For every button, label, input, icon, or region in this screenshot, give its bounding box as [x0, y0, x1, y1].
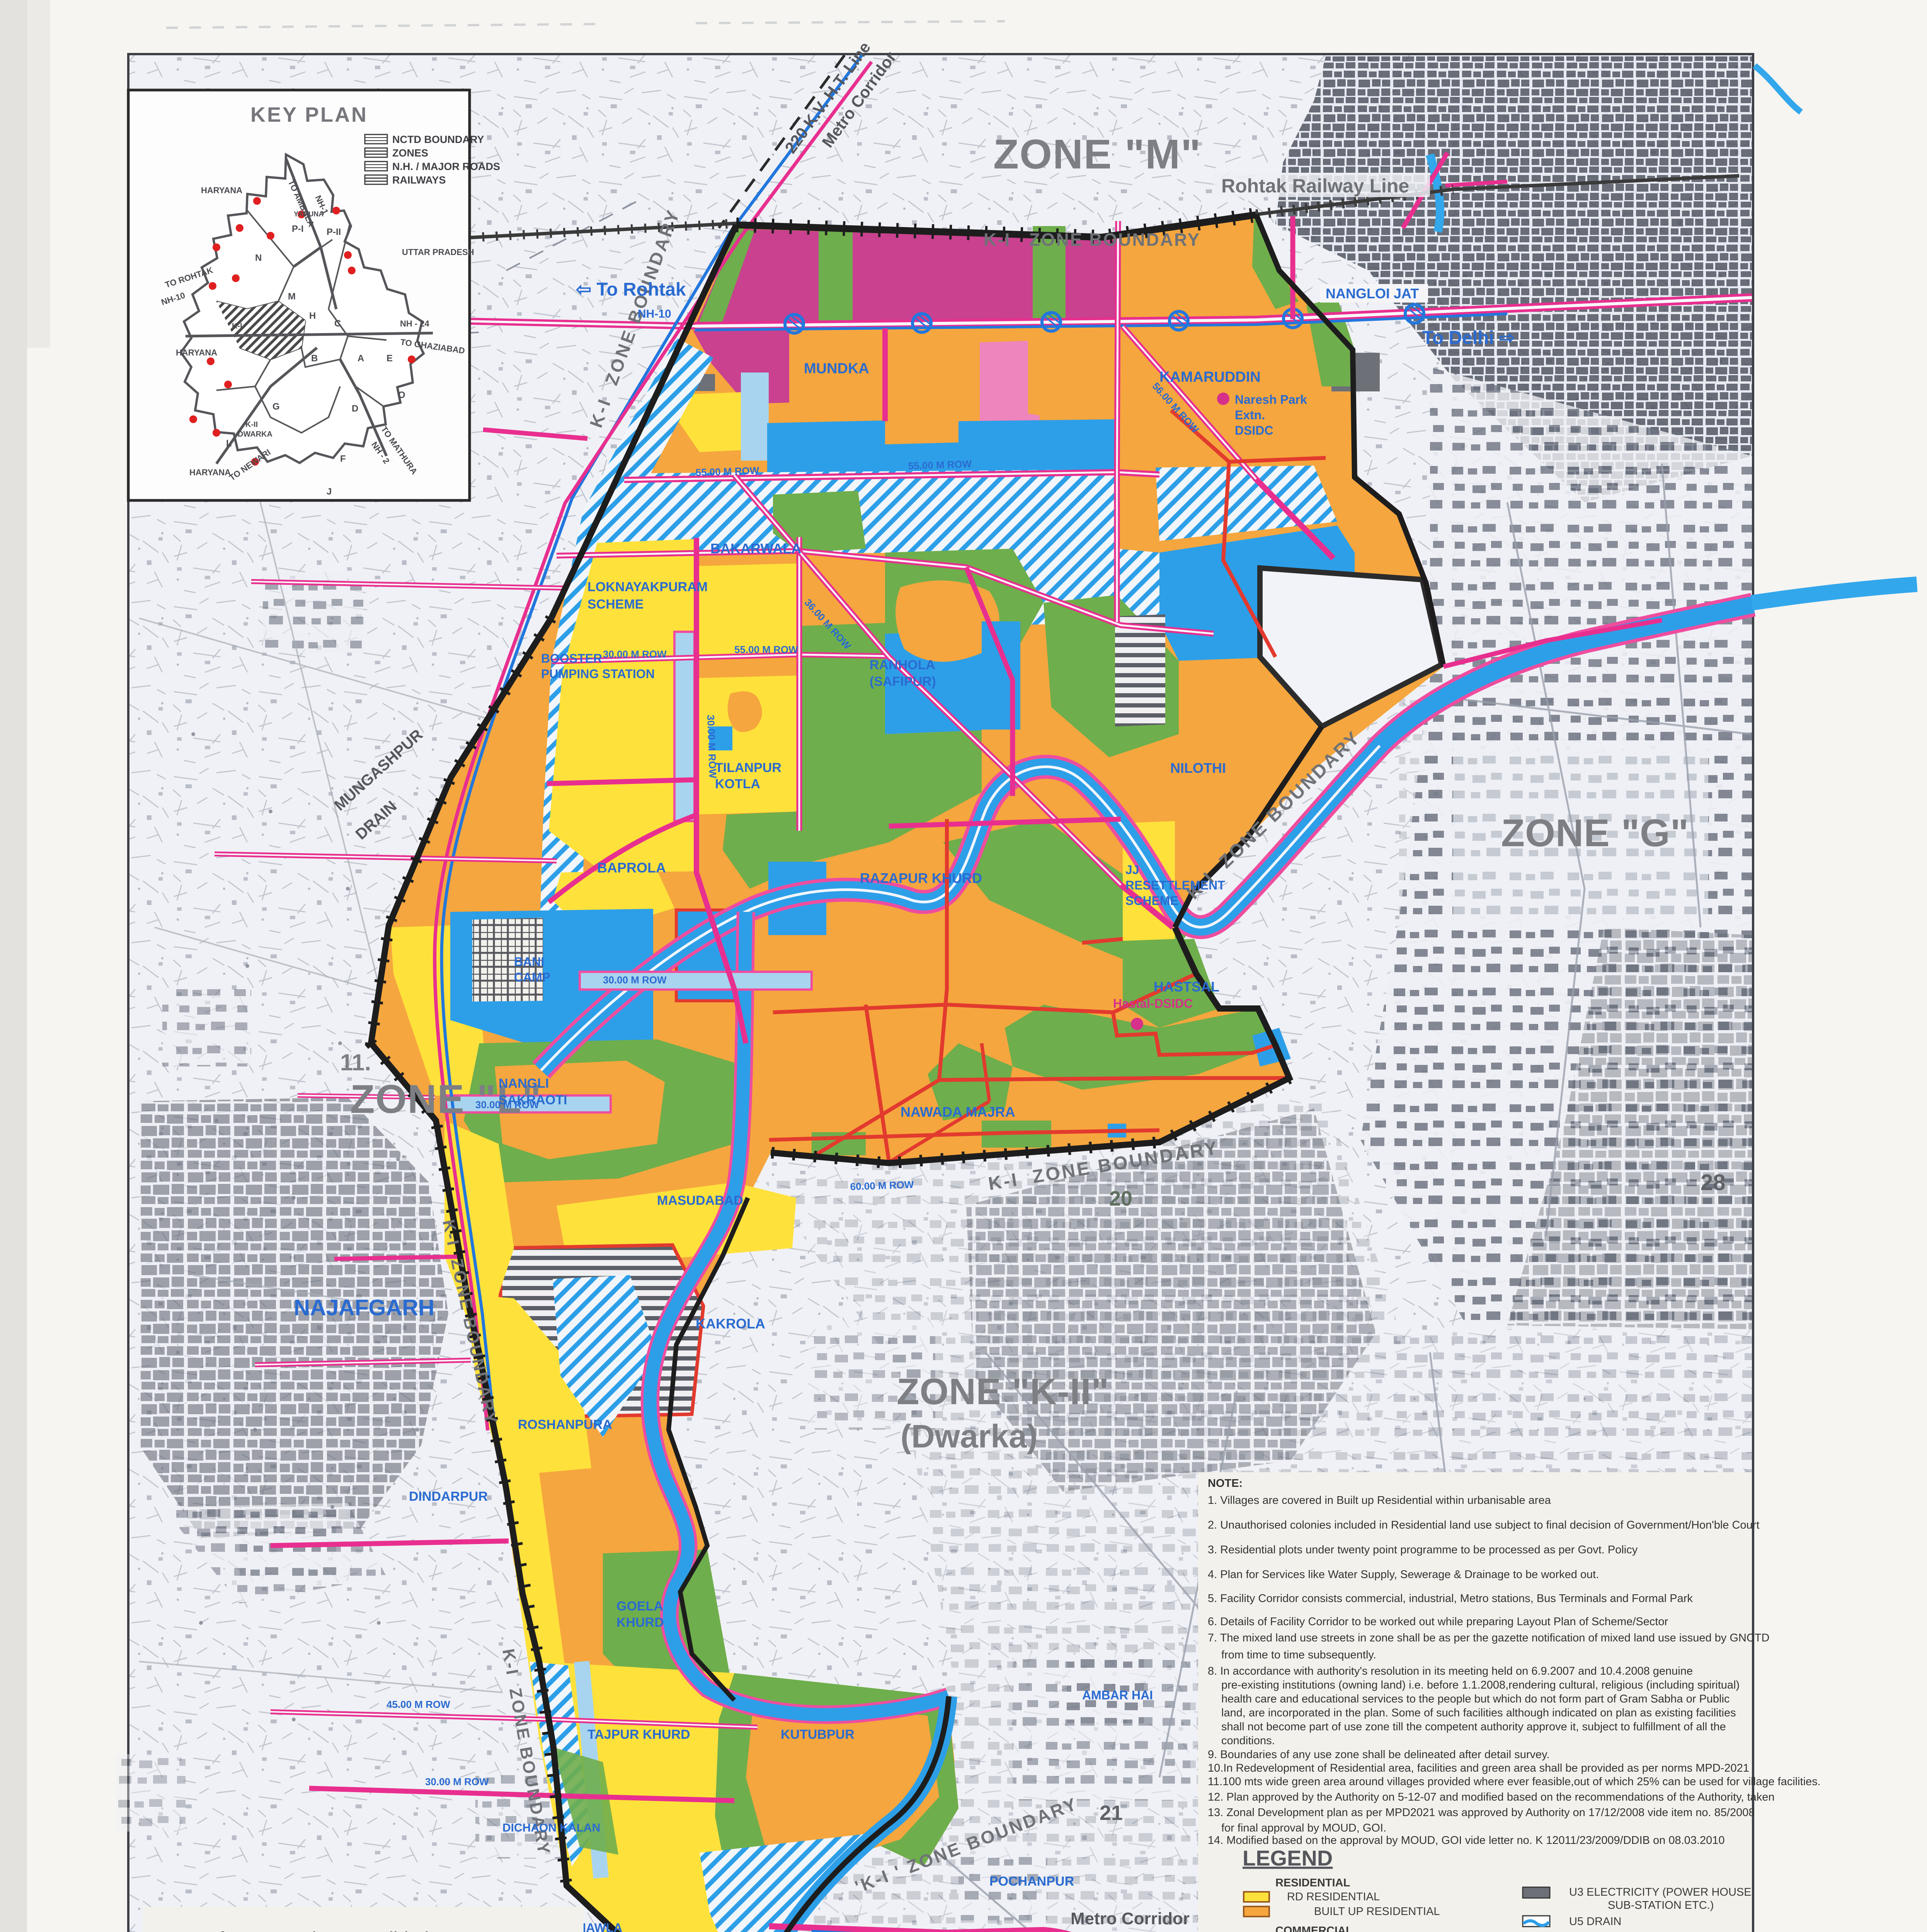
svg-text:Metro Corridor: Metro Corridor: [1071, 1909, 1190, 1928]
svg-text:30.00 M ROW: 30.00 M ROW: [705, 714, 719, 779]
svg-text:UTTAR PRADESH: UTTAR PRADESH: [402, 247, 474, 257]
svg-text:12. Plan approved by the Autho: 12. Plan approved by the Authority on 5-…: [1208, 1791, 1775, 1803]
svg-text:B: B: [311, 353, 318, 364]
svg-text:20: 20: [1109, 1187, 1132, 1210]
svg-text:JJ: JJ: [1125, 863, 1139, 877]
svg-text:ZONE "M": ZONE "M": [993, 131, 1201, 177]
svg-text:RAZAPUR KHURD: RAZAPUR KHURD: [860, 870, 982, 886]
svg-text:LEGEND: LEGEND: [1243, 1846, 1333, 1870]
svg-text:RD RESIDENTIAL: RD RESIDENTIAL: [1287, 1891, 1380, 1903]
svg-text:ZDP of Zone K-I (West Delhi-II: ZDP of Zone K-I (West Delhi-II): [164, 1928, 432, 1932]
svg-text:MUNDKA: MUNDKA: [804, 361, 869, 377]
svg-text:NAJAFGARH: NAJAFGARH: [294, 1295, 434, 1320]
svg-text:HASTSAL: HASTSAL: [1154, 979, 1219, 995]
svg-text:TILANPUR: TILANPUR: [715, 760, 781, 775]
svg-text:5. Facility Corridor consists: 5. Facility Corridor consists commercial…: [1208, 1592, 1693, 1605]
svg-text:30.00 M ROW: 30.00 M ROW: [425, 1776, 489, 1787]
svg-text:PUMPING STATION: PUMPING STATION: [541, 667, 655, 681]
svg-text:POCHANPUR: POCHANPUR: [989, 1874, 1074, 1889]
svg-text:land, are incorporated in the: land, are incorporated in the plan. Some…: [1221, 1707, 1736, 1719]
svg-text:NANGLOI JAT: NANGLOI JAT: [1326, 286, 1419, 301]
svg-text:conditions.: conditions.: [1221, 1735, 1275, 1747]
svg-text:KHURD: KHURD: [616, 1615, 664, 1630]
svg-text:N.H. / MAJOR ROADS: N.H. / MAJOR ROADS: [392, 161, 500, 172]
svg-text:11.100 mts wide green area aro: 11.100 mts wide green area around villag…: [1208, 1776, 1821, 1788]
svg-text:TAJPUR KHURD: TAJPUR KHURD: [587, 1727, 690, 1742]
svg-text:SCHEME: SCHEME: [587, 597, 643, 612]
svg-text:G: G: [272, 401, 280, 412]
svg-text:8. In accordance with authorit: 8. In accordance with authority's resolu…: [1208, 1665, 1693, 1677]
svg-text:K-I ZONE BOUNDARY: K-I ZONE BOUNDARY: [984, 230, 1200, 250]
svg-text:from time to time subsequentl: from time to time subsequently.: [1221, 1649, 1376, 1661]
svg-text:MASUDABAD: MASUDABAD: [657, 1193, 743, 1208]
svg-text:55.00 M ROW: 55.00 M ROW: [734, 644, 798, 655]
svg-text:(Dwarka): (Dwarka): [901, 1418, 1038, 1454]
svg-text:1. Villages are covered in Bui: 1. Villages are covered in Built up Resi…: [1208, 1494, 1551, 1507]
svg-text:P-II: P-II: [327, 227, 341, 237]
svg-text:SUB-STATION ETC.): SUB-STATION ETC.): [1608, 1899, 1714, 1912]
svg-text:health care and educational se: health care and educational services to …: [1221, 1693, 1730, 1705]
svg-text:SCHEME: SCHEME: [1125, 894, 1178, 908]
svg-text:⇦ To Rohtak: ⇦ To Rohtak: [576, 279, 686, 300]
svg-text:DSIDC: DSIDC: [1235, 423, 1273, 437]
svg-text:Rohtak Railway Line: Rohtak Railway Line: [1221, 175, 1409, 197]
svg-text:shall not become part of use z: shall not become part of use zone till t…: [1221, 1721, 1726, 1733]
svg-text:To Delhi ⇨: To Delhi ⇨: [1422, 328, 1515, 348]
svg-text:HARYANA: HARYANA: [176, 348, 217, 357]
svg-text:A: A: [357, 353, 364, 364]
svg-text:NAWADA MAJRA: NAWADA MAJRA: [901, 1104, 1015, 1120]
svg-text:J: J: [327, 486, 332, 497]
svg-text:RESETTLEMENT: RESETTLEMENT: [1125, 878, 1225, 892]
svg-text:E: E: [386, 353, 393, 364]
svg-text:KOTLA: KOTLA: [715, 777, 760, 791]
svg-text:U5 DRAIN: U5 DRAIN: [1569, 1915, 1621, 1928]
svg-text:DICHAON KALAN: DICHAON KALAN: [502, 1821, 600, 1834]
svg-text:4. Plan for Services like Wate: 4. Plan for Services like Water Supply, …: [1208, 1568, 1599, 1581]
svg-text:BAKARWALA: BAKARWALA: [710, 541, 801, 556]
svg-text:DINDARPUR: DINDARPUR: [409, 1489, 488, 1504]
svg-text:H: H: [309, 311, 316, 321]
svg-text:(SAFIPUR): (SAFIPUR): [870, 674, 936, 689]
svg-text:KUTUBPUR: KUTUBPUR: [781, 1727, 855, 1742]
svg-text:BANI: BANI: [514, 955, 544, 969]
svg-text:RAILWAYS: RAILWAYS: [392, 174, 446, 186]
svg-text:60.00 M ROW: 60.00 M ROW: [850, 1179, 914, 1192]
svg-text:13. Zonal Development plan as: 13. Zonal Development plan as per MPD202…: [1208, 1806, 1755, 1819]
svg-text:30.00 M ROW: 30.00 M ROW: [603, 974, 667, 986]
svg-text:RANHOLA: RANHOLA: [870, 658, 935, 672]
svg-text:KAKROLA: KAKROLA: [696, 1316, 765, 1332]
svg-text:for final approval by MOUD, G: for final approval by MOUD, GOI.: [1221, 1822, 1386, 1834]
svg-text:DWARKA: DWARKA: [238, 430, 272, 439]
svg-text:C: C: [334, 318, 341, 329]
svg-text:NH-10: NH-10: [638, 308, 671, 320]
svg-text:11.: 11.: [340, 1049, 371, 1075]
svg-text:2. Unauthorised colonies inclu: 2. Unauthorised colonies included in Res…: [1208, 1519, 1759, 1531]
svg-text:KEY PLAN: KEY PLAN: [250, 103, 368, 126]
svg-text:BOOSTER: BOOSTER: [541, 651, 602, 665]
svg-text:N: N: [255, 253, 262, 263]
svg-text:ZONE "G": ZONE "G": [1501, 811, 1689, 855]
svg-text:21: 21: [1100, 1801, 1123, 1825]
svg-text:Hastal-DSIDC: Hastal-DSIDC: [1113, 997, 1193, 1010]
svg-text:BAPROLA: BAPROLA: [597, 860, 666, 876]
svg-text:COMMERCIAL: COMMERCIAL: [1275, 1925, 1353, 1932]
svg-text:CAMP: CAMP: [514, 970, 550, 984]
svg-text:9. Boundaries of any use zone: 9. Boundaries of any use zone shall be d…: [1208, 1748, 1550, 1761]
svg-text:YAMUNA: YAMUNA: [294, 210, 323, 218]
svg-text:KAMARUDDIN: KAMARUDDIN: [1159, 369, 1261, 385]
svg-text:14. Modified based on the appr: 14. Modified based on the approval by MO…: [1208, 1834, 1725, 1847]
svg-text:ROSHANPURA: ROSHANPURA: [518, 1417, 612, 1432]
svg-text:K-I: K-I: [232, 322, 242, 330]
svg-text:NANGLI: NANGLI: [499, 1076, 549, 1091]
svg-text:Extn.: Extn.: [1235, 408, 1265, 422]
svg-text:O: O: [398, 390, 405, 400]
svg-text:55.00 M ROW: 55.00 M ROW: [695, 464, 759, 478]
svg-text:U3 ELECTRICITY (POWER HOUSE: U3 ELECTRICITY (POWER HOUSE: [1569, 1886, 1752, 1898]
svg-text:K-II: K-II: [245, 420, 258, 429]
svg-text:GOELA: GOELA: [616, 1599, 663, 1614]
svg-text:HARYANA: HARYANA: [201, 185, 242, 195]
svg-text:30.00 M ROW: 30.00 M ROW: [603, 648, 667, 660]
svg-text:30.00 M ROW: 30.00 M ROW: [475, 1099, 539, 1111]
svg-text:BUILT UP RESIDENTIAL: BUILT UP RESIDENTIAL: [1314, 1905, 1440, 1918]
svg-text:6. Details of Facility Corrido: 6. Details of Facility Corridor to be wo…: [1208, 1616, 1668, 1628]
svg-text:7. The mixed land use streets: 7. The mixed land use streets in zone sh…: [1208, 1632, 1769, 1644]
svg-text:Naresh Park: Naresh Park: [1235, 393, 1307, 406]
svg-text:NCTD BOUNDARY: NCTD BOUNDARY: [392, 134, 484, 145]
svg-text:NH - 24: NH - 24: [400, 319, 430, 328]
svg-text:10.In Redevelopment of Residen: 10.In Redevelopment of Residential area,…: [1208, 1762, 1749, 1774]
svg-text:M: M: [288, 291, 296, 302]
svg-text:AMBAR HAI: AMBAR HAI: [1082, 1688, 1153, 1702]
svg-text:NOTE:: NOTE:: [1208, 1477, 1243, 1490]
svg-text:HARYANA: HARYANA: [189, 468, 231, 477]
svg-text:45.00 M ROW: 45.00 M ROW: [386, 1699, 450, 1710]
svg-text:P-I: P-I: [292, 224, 304, 234]
svg-text:55.00 M ROW: 55.00 M ROW: [908, 458, 972, 472]
svg-text:L: L: [226, 438, 232, 449]
svg-text:D: D: [352, 403, 358, 414]
svg-text:3. Residential plots under twe: 3. Residential plots under twenty point …: [1208, 1544, 1638, 1556]
svg-text:NILOTHI: NILOTHI: [1170, 760, 1226, 776]
svg-text:RESIDENTIAL: RESIDENTIAL: [1275, 1877, 1350, 1889]
svg-text:ZONES: ZONES: [392, 147, 428, 159]
svg-text:LOKNAYAKPURAM: LOKNAYAKPURAM: [587, 580, 708, 594]
svg-text:pre-existing institutions (own: pre-existing institutions (owning land) …: [1221, 1679, 1740, 1691]
svg-text:28: 28: [1701, 1170, 1726, 1195]
svg-text:F: F: [340, 454, 346, 464]
svg-text:ZONE "K-II": ZONE "K-II": [897, 1371, 1109, 1412]
